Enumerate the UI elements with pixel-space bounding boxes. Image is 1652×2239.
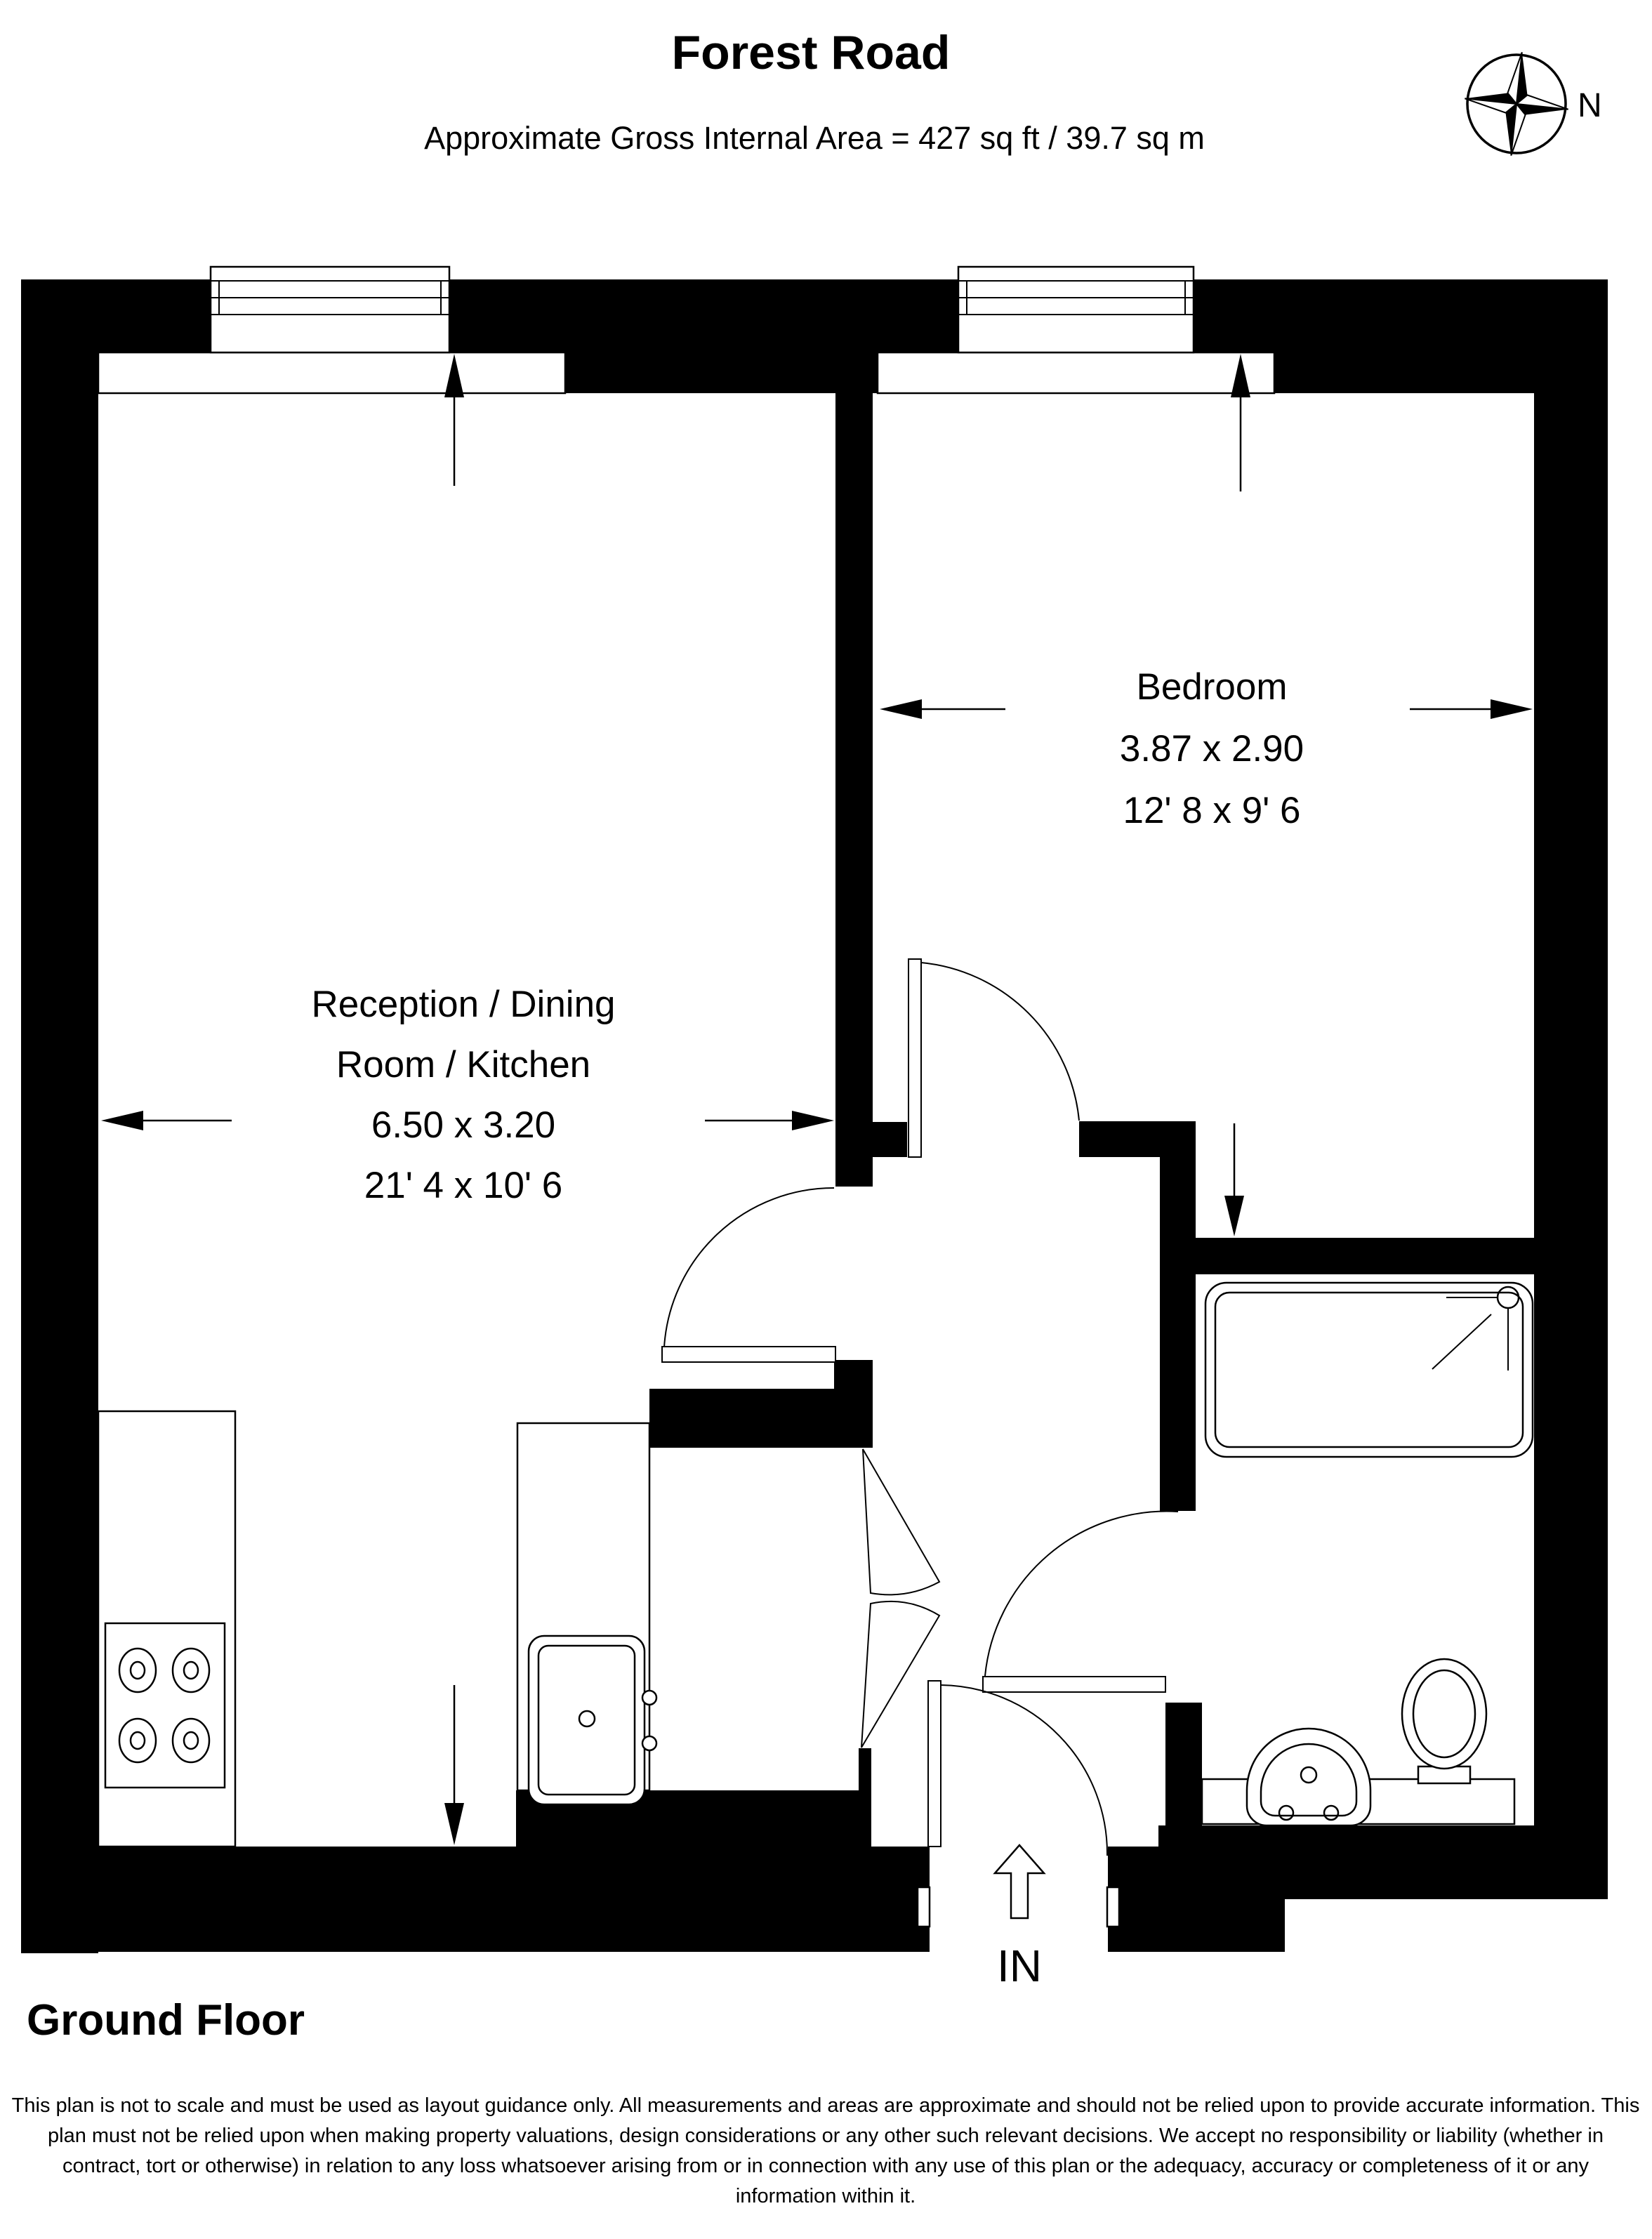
basin-icon	[1247, 1729, 1370, 1825]
wall-bathroom-divider	[1160, 1157, 1196, 1511]
entrance-marker: IN	[995, 1845, 1044, 1991]
reception-label: Reception / Dining Room / Kitchen 6.50 x…	[311, 984, 615, 1206]
door-reception-leaf	[662, 1347, 835, 1362]
toilet-icon	[1402, 1659, 1486, 1783]
wall-central	[835, 393, 873, 1187]
reception-arrow-right	[705, 1111, 834, 1130]
page-title: Forest Road	[672, 26, 951, 79]
reception-dims-metric: 6.50 x 3.20	[371, 1104, 555, 1146]
bedroom-arrow-left	[880, 699, 1005, 719]
door-entrance-leaf	[928, 1681, 941, 1847]
sill-bedroom	[878, 352, 1274, 393]
door-bathroom	[983, 1511, 1178, 1692]
floor-label: Ground Floor	[27, 1996, 305, 2045]
bedroom-arrow-down	[1224, 1123, 1244, 1236]
wall-left	[21, 279, 98, 1953]
reception-arrow-down	[444, 1685, 464, 1845]
window-bedroom-icon	[958, 267, 1194, 352]
sill-reception	[98, 352, 565, 393]
wall-bedroom-door-jamb	[873, 1122, 907, 1157]
door-bedroom-arc	[921, 963, 1079, 1121]
wall-hall-top	[1079, 1121, 1196, 1157]
door-reception	[662, 1188, 835, 1362]
wall-right	[1534, 279, 1608, 1899]
hob-icon	[105, 1623, 225, 1788]
wall-central-lower	[834, 1360, 873, 1448]
page-subtitle: Approximate Gross Internal Area = 427 sq…	[424, 120, 1205, 156]
floorplan-page: { "header": { "title": "Forest Road", "s…	[0, 0, 1652, 2239]
door-bedroom	[908, 959, 1079, 1157]
entrance-arrow-icon	[995, 1845, 1044, 1918]
floor-plan-canvas: Forest Road Approximate Gross Internal A…	[0, 0, 1652, 2239]
wall-bedroom-bottom	[1196, 1238, 1534, 1274]
bedroom-dims-metric: 3.87 x 2.90	[1120, 728, 1304, 770]
door-entrance-arc	[941, 1685, 1107, 1856]
compass-icon: N	[1465, 52, 1601, 155]
bedroom-arrow-right	[1410, 699, 1533, 719]
compass-north-label: N	[1578, 87, 1602, 124]
reception-name-line2: Room / Kitchen	[336, 1044, 590, 1085]
bedroom-label: Bedroom 3.87 x 2.90 12' 8 x 9' 6	[1120, 666, 1304, 831]
dimension-arrows	[101, 354, 1533, 1845]
bedroom-dims-imperial: 12' 8 x 9' 6	[1123, 790, 1300, 831]
entrance-jamb-left	[918, 1887, 930, 1927]
door-reception-arc	[664, 1188, 834, 1347]
entrance-label: IN	[997, 1941, 1042, 1991]
wall-bottom-left	[21, 1847, 930, 1952]
door-bathroom-arc	[985, 1511, 1178, 1676]
bathtub-icon	[1205, 1283, 1533, 1457]
wall-bifold-stub	[859, 1748, 871, 1848]
wall-bathroom-divider-lower	[1165, 1703, 1202, 1848]
disclaimer-text: This plan is not to scale and must be us…	[11, 2091, 1640, 2212]
door-bathroom-leaf	[983, 1677, 1165, 1692]
reception-name-line1: Reception / Dining	[311, 984, 615, 1025]
reception-dims-imperial: 21' 4 x 10' 6	[364, 1165, 563, 1206]
kitchen-sink-icon	[529, 1636, 656, 1804]
entrance-jamb-right	[1107, 1887, 1119, 1927]
wall-closet-top	[649, 1389, 834, 1448]
reception-arrow-left	[101, 1111, 232, 1130]
bedroom-name: Bedroom	[1136, 666, 1287, 708]
door-bedroom-leaf	[908, 959, 921, 1157]
wall-bathroom-bottom	[1158, 1825, 1608, 1899]
window-reception-icon	[211, 267, 449, 352]
